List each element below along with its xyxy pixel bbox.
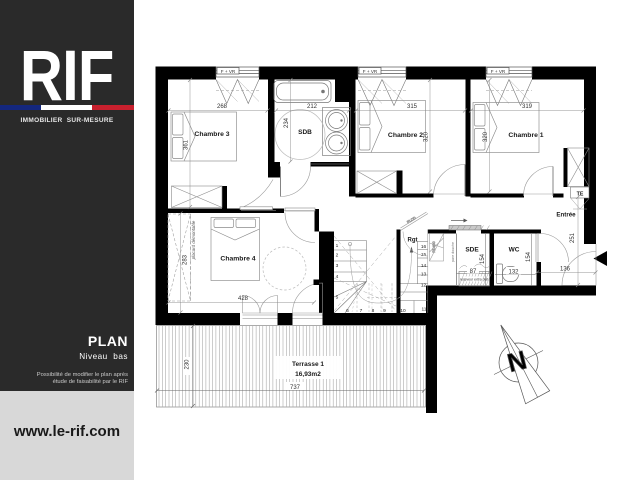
svg-text:136: 136 (560, 267, 571, 273)
svg-text:234: 234 (284, 117, 290, 128)
svg-text:PLCD: PLCD (406, 216, 417, 225)
svg-text:154: 154 (480, 253, 486, 264)
svg-text:Terrasse 1: Terrasse 1 (292, 361, 324, 368)
svg-text:10: 10 (400, 308, 406, 314)
svg-text:283: 283 (183, 254, 189, 265)
svg-text:230: 230 (185, 359, 191, 370)
svg-text:RD400: RD400 (432, 241, 436, 252)
svg-text:F + VR: F + VR (363, 69, 378, 74)
svg-text:15: 15 (421, 252, 427, 258)
svg-text:1: 1 (336, 243, 339, 249)
svg-text:receveur extra plat: receveur extra plat (460, 278, 488, 282)
svg-text:13: 13 (421, 272, 427, 278)
svg-text:428: 428 (238, 296, 249, 302)
svg-text:TE: TE (577, 192, 584, 198)
svg-text:315: 315 (407, 104, 418, 110)
svg-text:319: 319 (522, 104, 533, 110)
svg-text:9: 9 (383, 308, 386, 314)
svg-text:F + VR: F + VR (221, 69, 236, 74)
svg-text:12: 12 (421, 283, 427, 289)
svg-text:212: 212 (307, 104, 318, 110)
svg-text:F + VR: F + VR (491, 69, 506, 74)
svg-text:3: 3 (336, 263, 339, 269)
svg-text:16,93m2: 16,93m2 (295, 371, 321, 378)
svg-text:320: 320 (483, 131, 489, 142)
svg-text:320: 320 (424, 131, 430, 142)
svg-text:737: 737 (290, 385, 301, 391)
svg-text:placard démontable: placard démontable (191, 220, 196, 260)
svg-text:361: 361 (184, 139, 190, 150)
svg-text:Chambre 3: Chambre 3 (194, 131, 229, 138)
svg-text:14: 14 (421, 263, 427, 269)
svg-text:268: 268 (217, 104, 228, 110)
svg-text:5: 5 (336, 295, 339, 301)
svg-text:Entrée: Entrée (556, 212, 576, 219)
svg-text:SDB: SDB (298, 129, 312, 136)
svg-text:Chambre 1: Chambre 1 (508, 132, 543, 139)
svg-text:251: 251 (570, 232, 576, 243)
svg-text:6: 6 (346, 308, 349, 314)
svg-text:8: 8 (372, 308, 375, 314)
svg-text:87: 87 (470, 269, 477, 275)
svg-text:Chambre 2: Chambre 2 (388, 132, 423, 139)
svg-text:N: N (504, 344, 529, 378)
svg-text:SDE: SDE (465, 247, 479, 254)
svg-text:16: 16 (421, 244, 427, 250)
svg-text:154: 154 (526, 251, 532, 262)
svg-text:WC: WC (509, 247, 520, 254)
svg-text:pare douche: pare douche (451, 242, 455, 262)
svg-text:132: 132 (508, 270, 519, 276)
svg-text:7: 7 (360, 308, 363, 314)
svg-text:11: 11 (422, 307, 427, 313)
svg-text:2: 2 (336, 253, 339, 259)
svg-text:Chambre 4: Chambre 4 (220, 256, 255, 263)
svg-text:4: 4 (336, 274, 339, 280)
svg-text:Rgt: Rgt (408, 238, 418, 244)
